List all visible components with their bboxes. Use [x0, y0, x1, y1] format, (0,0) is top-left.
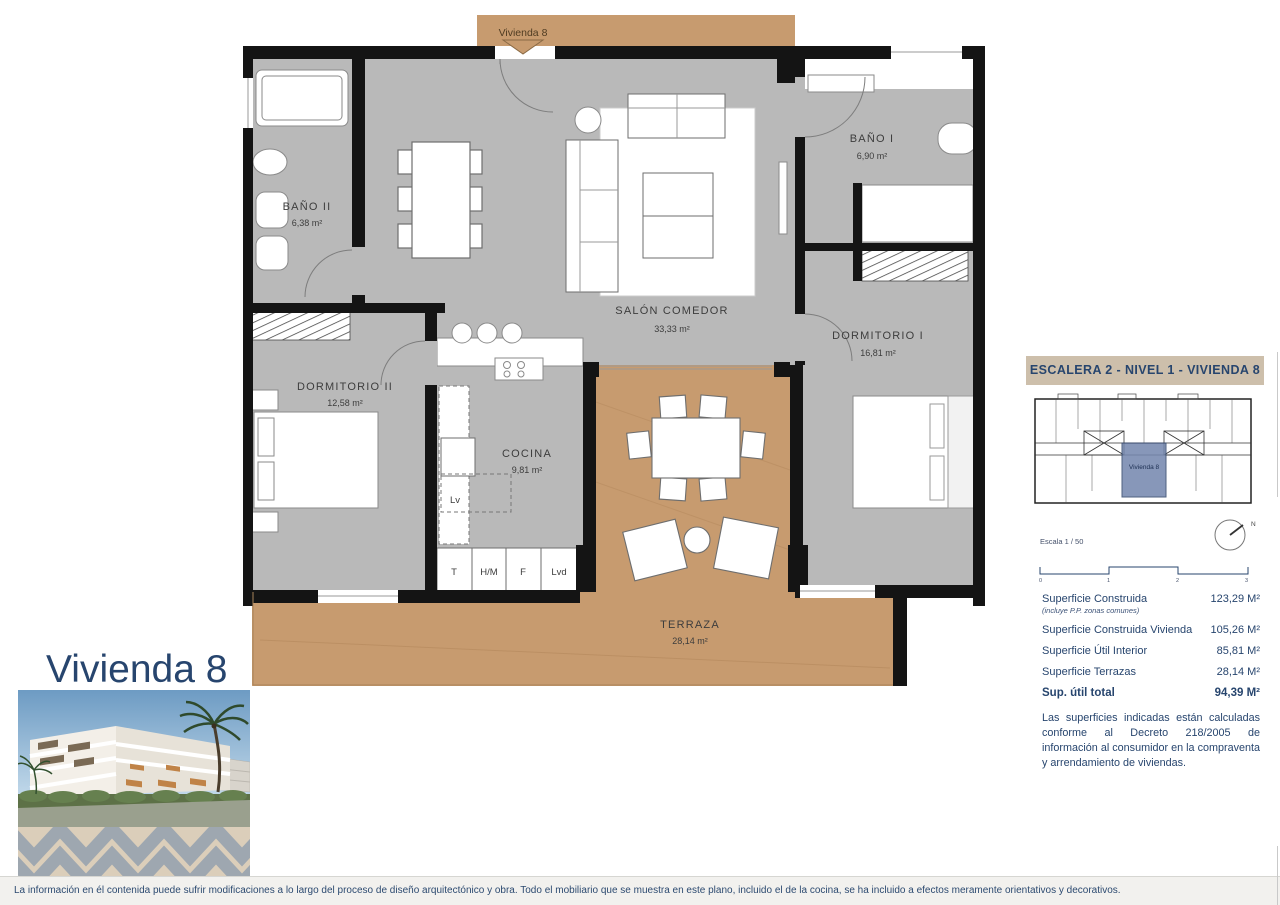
- living-room-furniture: [566, 94, 787, 296]
- scalebar-2: 2: [1176, 578, 1179, 583]
- zigzag-pattern: [18, 827, 250, 877]
- room-bano1-name: BAÑO I: [850, 132, 895, 145]
- table-row: Superficie Construida Vivienda 105,26 M²: [1042, 624, 1260, 636]
- wardrobe-dorm1: [862, 249, 968, 281]
- page-title: Vivienda 8: [46, 648, 286, 692]
- room-salon-name: SALÓN COMEDOR: [615, 304, 728, 317]
- disclaimer-text: La información en él contenida puede suf…: [0, 877, 1280, 905]
- row1-value: 123,29 M²: [1210, 593, 1260, 605]
- appliance-lvd: Lvd: [551, 567, 566, 578]
- brochure-sheet: Vivienda 8 BAÑO II 6,38 m² DORMITORIO II…: [0, 0, 1280, 905]
- bedroom1-furniture: [853, 396, 975, 508]
- room-dorm2-area: 12,58 m²: [327, 398, 363, 408]
- row1-sublabel: (incluye P.P. zonas comunes): [1042, 606, 1147, 615]
- room-bano1-area: 6,90 m²: [857, 151, 888, 161]
- scale-text: Escala 1 / 50: [1040, 537, 1083, 546]
- page-edge-line: [1277, 352, 1278, 497]
- surface-table: Superficie Construida (incluye P.P. zona…: [1042, 593, 1260, 699]
- room-cocina-name: COCINA: [502, 448, 552, 460]
- row2-label: Superficie Construida Vivienda: [1042, 624, 1192, 636]
- room-bano2-name: BAÑO II: [283, 200, 332, 213]
- room-terraza-name: TERRAZA: [660, 619, 720, 631]
- room-dorm1-area: 16,81 m²: [860, 348, 896, 358]
- table-row: Superficie Terrazas 28,14 M²: [1042, 666, 1260, 678]
- scale-row: Escala 1 / 50 N: [1026, 513, 1264, 559]
- table-row: Superficie Útil Interior 85,81 M²: [1042, 645, 1260, 657]
- table-row: Superficie Construida (incluye P.P. zona…: [1042, 593, 1260, 615]
- key-plan: Vivienda 8: [1026, 391, 1264, 513]
- scale-bar: 0 1 2 3: [1038, 561, 1252, 583]
- building-render-image: [18, 690, 250, 827]
- row1-label: Superficie Construida: [1042, 593, 1147, 605]
- info-panel: ESCALERA 2 - NIVEL 1 - VIVIENDA 8: [1026, 356, 1264, 771]
- panel-header: ESCALERA 2 - NIVEL 1 - VIVIENDA 8: [1026, 356, 1264, 385]
- appliance-lv: Lv: [450, 495, 460, 506]
- total-value: 94,39 M²: [1215, 687, 1260, 699]
- room-dorm2-name: DORMITORIO II: [297, 381, 393, 393]
- footer-disclaimer-bar: La información en él contenida puede suf…: [0, 876, 1280, 905]
- entry-label: Vivienda 8: [499, 27, 548, 39]
- row4-label: Superficie Terrazas: [1042, 666, 1136, 678]
- appliance-f: F: [520, 567, 526, 578]
- room-terraza-area: 28,14 m²: [672, 636, 708, 646]
- scalebar-1: 1: [1107, 578, 1110, 583]
- room-cocina-area: 9,81 m²: [512, 465, 543, 475]
- scalebar-3: 3: [1245, 578, 1248, 583]
- floor-plan: Vivienda 8 BAÑO II 6,38 m² DORMITORIO II…: [0, 0, 1000, 700]
- row3-label: Superficie Útil Interior: [1042, 645, 1147, 657]
- page-edge-line-bottom: [1277, 846, 1278, 905]
- row2-value: 105,26 M²: [1210, 624, 1260, 636]
- table-total-row: Sup. útil total 94,39 M²: [1042, 687, 1260, 699]
- row4-value: 28,14 M²: [1217, 666, 1260, 678]
- appliance-t: T: [451, 567, 457, 578]
- row3-value: 85,81 M²: [1217, 645, 1260, 657]
- room-dorm1-name: DORMITORIO I: [832, 330, 924, 342]
- appliance-hm: H/M: [480, 567, 498, 578]
- dining-table: [398, 142, 482, 258]
- room-salon-area: 33,33 m²: [654, 324, 690, 334]
- wardrobe-dorm2: [252, 312, 350, 340]
- compass-icon: N: [1210, 513, 1262, 555]
- total-label: Sup. útil total: [1042, 687, 1115, 699]
- legal-note: Las superficies indicadas están calculad…: [1042, 711, 1260, 771]
- scalebar-0: 0: [1039, 578, 1042, 583]
- keyplan-highlight-label: Vivienda 8: [1129, 464, 1160, 471]
- room-bano2-area: 6,38 m²: [292, 218, 323, 228]
- compass-n-label: N: [1251, 521, 1256, 528]
